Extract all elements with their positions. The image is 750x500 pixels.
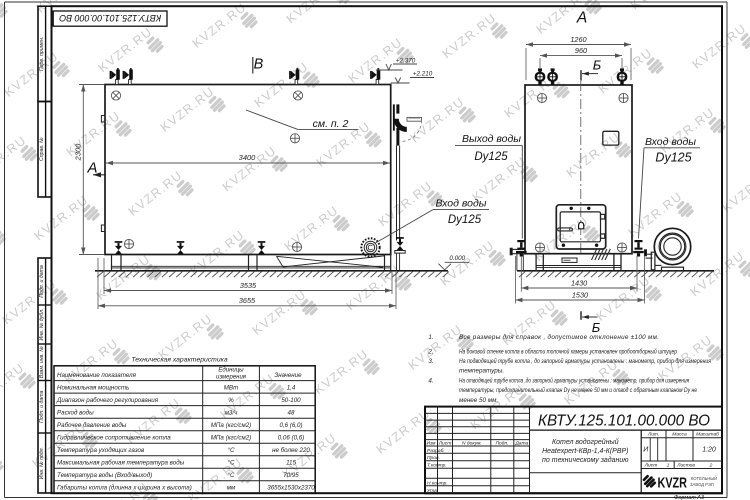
svg-text:Пров.: Пров. (427, 455, 440, 461)
svg-text:960: 960 (575, 46, 587, 55)
svg-text:48: 48 (288, 410, 295, 417)
svg-text:%: % (228, 397, 234, 404)
svg-text:Лит.: Лит. (647, 432, 659, 438)
svg-text:не более 220: не более 220 (272, 447, 310, 454)
svg-text:Техническая характеристика: Техническая характеристика (131, 357, 227, 364)
svg-text:МВт: МВт (224, 385, 238, 392)
svg-text:°С: °С (228, 460, 235, 467)
svg-text:На боковой стенке котла в обла: На боковой стенке котла в области топочн… (459, 347, 677, 355)
svg-text:115: 115 (286, 460, 296, 467)
svg-text:0.000: 0.000 (449, 255, 465, 262)
svg-text:Б: Б (592, 320, 601, 335)
svg-text:Утв.: Утв. (427, 488, 438, 494)
svg-text:КОТЕЛЬНЫЙ: КОТЕЛЬНЫЙ (691, 476, 717, 481)
svg-text:Взам. инв. №: Взам. инв. № (39, 346, 45, 378)
svg-text:Dу125: Dу125 (474, 151, 508, 163)
svg-text:Котел водогрейный: Котел водогрейный (552, 438, 619, 446)
svg-text:2: 2 (709, 463, 713, 469)
svg-text:Лист: Лист (644, 463, 658, 469)
svg-text:Инв. № дубл.: Инв. № дубл. (39, 309, 45, 341)
svg-text:Формат А3: Формат А3 (674, 495, 705, 500)
svg-text:Инв. № подл.: Инв. № подл. (39, 447, 45, 479)
svg-text:Расход воды: Расход воды (57, 410, 94, 417)
svg-text:Номинальная мощность: Номинальная мощность (57, 385, 129, 392)
svg-text:менее 50 мм.: менее 50 мм. (459, 397, 498, 404)
svg-text:Дата: Дата (514, 440, 528, 446)
svg-text:Перв. примен.: Перв. примен. (39, 37, 45, 71)
svg-text:Dу125: Dу125 (655, 151, 691, 165)
svg-text:3400: 3400 (239, 153, 257, 162)
svg-text:1530: 1530 (572, 290, 588, 299)
svg-text:1.: 1. (428, 334, 433, 341)
svg-text:Вход воды: Вход воды (436, 197, 487, 209)
svg-text:Все размеры для справок , допу: Все размеры для справок , допустимое отк… (459, 333, 659, 341)
svg-text:50-100: 50-100 (281, 397, 301, 404)
svg-text:0,06 (0,6): 0,06 (0,6) (278, 435, 304, 442)
svg-text:измерения: измерения (216, 374, 247, 380)
svg-text:Гидравлическое сопротивление к: Гидравлическое сопротивление котла (57, 435, 171, 442)
svg-text:На отводящей трубе котла ,до з: На отводящей трубе котла ,до запорной ар… (459, 376, 689, 384)
svg-text:ЗАВОД РЭП: ЗАВОД РЭП (690, 482, 714, 487)
svg-text:70/95: 70/95 (283, 472, 299, 479)
svg-text:Б: Б (593, 58, 602, 73)
svg-text:3535: 3535 (240, 281, 257, 290)
svg-text:Dу125: Dу125 (448, 214, 482, 226)
svg-text:Подп.: Подп. (495, 440, 508, 446)
svg-text:Диапазон рабочего регулировани: Диапазон рабочего регулирования (56, 397, 159, 404)
svg-text:На подводящей трубе котла , д: На подводящей трубе котла , до запорной … (459, 357, 712, 365)
svg-text:МПа (кгс/см2): МПа (кгс/см2) (211, 435, 251, 442)
svg-text:3655х1530х2370: 3655х1530х2370 (267, 485, 315, 492)
svg-text:Масштаб: Масштаб (696, 432, 719, 438)
svg-text:Изм: Изм (426, 440, 436, 446)
svg-text:Лист: Лист (438, 440, 452, 446)
svg-text:Температура воды (Вход/выход): Температура воды (Вход/выход) (57, 472, 152, 479)
svg-text:Вход воды: Вход воды (645, 136, 696, 148)
svg-text:Разраб.: Разраб. (427, 448, 445, 454)
svg-text:Габариты котла (длинна х ширин: Габариты котла (длинна х ширина х высота… (57, 485, 192, 492)
svg-text:°С: °С (228, 472, 235, 479)
svg-text:1260: 1260 (570, 35, 586, 44)
svg-text:3655: 3655 (239, 296, 256, 305)
svg-text:Heatexpert-КВр-1,4-К(РВР): Heatexpert-КВр-1,4-К(РВР) (542, 448, 628, 455)
svg-text:1: 1 (667, 463, 670, 469)
svg-text:+2.210: +2.210 (413, 71, 433, 78)
svg-text:1,4: 1,4 (287, 385, 296, 392)
svg-text:Наименование показателя: Наименование показателя (57, 372, 137, 379)
svg-text:KVZR: KVZR (658, 475, 688, 491)
svg-text:температуры.: температуры. (459, 368, 504, 375)
svg-text:4.: 4. (428, 377, 433, 384)
svg-text:Н.контр.: Н.контр. (427, 480, 448, 486)
svg-text:Максимальная рабочая температу: Максимальная рабочая температура воды (57, 460, 185, 467)
svg-text:Т.контр.: Т.контр. (427, 463, 447, 469)
svg-text:В: В (254, 57, 264, 73)
svg-text:Справ. №: Справ. № (39, 137, 45, 161)
svg-text:Рабочее давление воды: Рабочее давление воды (57, 422, 127, 429)
svg-text:см. п. 2: см. п. 2 (313, 118, 349, 130)
svg-text:1:20: 1:20 (702, 447, 716, 454)
svg-text:3.: 3. (428, 358, 433, 365)
svg-text:N докум.: N докум. (462, 440, 482, 446)
svg-text:°С: °С (228, 447, 235, 454)
svg-text:1430: 1430 (571, 278, 587, 287)
svg-text:Выход воды: Выход воды (462, 133, 521, 145)
svg-text:0,6 (6,0): 0,6 (6,0) (279, 422, 302, 429)
svg-text:+2.370: +2.370 (396, 57, 416, 64)
svg-text:2.: 2. (427, 348, 433, 355)
svg-text:КВТУ.125.101.00.000 ВО: КВТУ.125.101.00.000 ВО (59, 12, 162, 23)
svg-text:МПа (кгс/см2): МПа (кгс/см2) (211, 422, 251, 429)
svg-text:Подп. и дата: Подп. и дата (39, 265, 45, 298)
svg-text:А: А (576, 10, 587, 27)
svg-text:2300: 2300 (73, 143, 82, 162)
svg-text:КВТУ.125.101.00.000 ВО: КВТУ.125.101.00.000 ВО (538, 413, 710, 430)
svg-text:по техническому заданию: по техническому заданию (542, 456, 629, 464)
svg-text:мм: мм (227, 485, 236, 492)
svg-text:Температура уходящих газов: Температура уходящих газов (57, 447, 145, 454)
svg-text:Листов: Листов (676, 463, 695, 469)
svg-text:Масса: Масса (672, 432, 687, 438)
svg-text:Подп. и дата: Подп. и дата (39, 390, 45, 423)
svg-text:Значение: Значение (274, 372, 302, 379)
svg-text:температуры, предохранительный: температуры, предохранительный клапан Dу… (459, 386, 697, 394)
svg-text:м3/ч: м3/ч (225, 410, 238, 417)
svg-text:Единицы: Единицы (218, 367, 244, 373)
